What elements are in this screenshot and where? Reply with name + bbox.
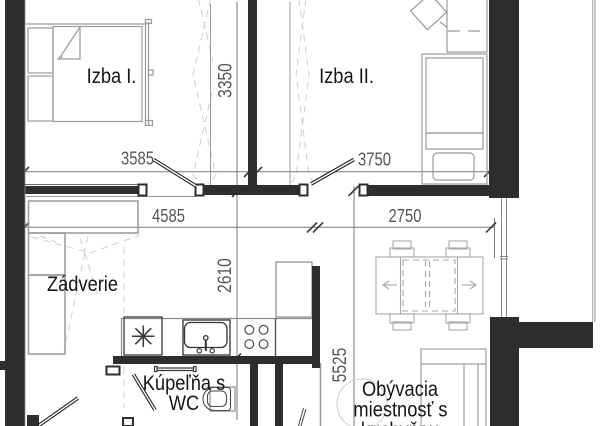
svg-text:2750: 2750 bbox=[389, 205, 422, 226]
svg-text:WC: WC bbox=[169, 392, 199, 415]
svg-text:Izba I.: Izba I. bbox=[87, 65, 137, 88]
svg-text:4585: 4585 bbox=[152, 205, 185, 226]
svg-text:3350: 3350 bbox=[214, 63, 236, 98]
svg-text:Zádverie: Zádverie bbox=[47, 273, 118, 296]
svg-text:2610: 2610 bbox=[214, 258, 236, 293]
svg-text:3750: 3750 bbox=[358, 149, 391, 170]
svg-text:3585: 3585 bbox=[121, 148, 154, 169]
svg-text:Izba II.: Izba II. bbox=[319, 65, 374, 88]
svg-text:5525: 5525 bbox=[329, 348, 351, 383]
svg-text:kuchyňou: kuchyňou bbox=[361, 419, 439, 426]
